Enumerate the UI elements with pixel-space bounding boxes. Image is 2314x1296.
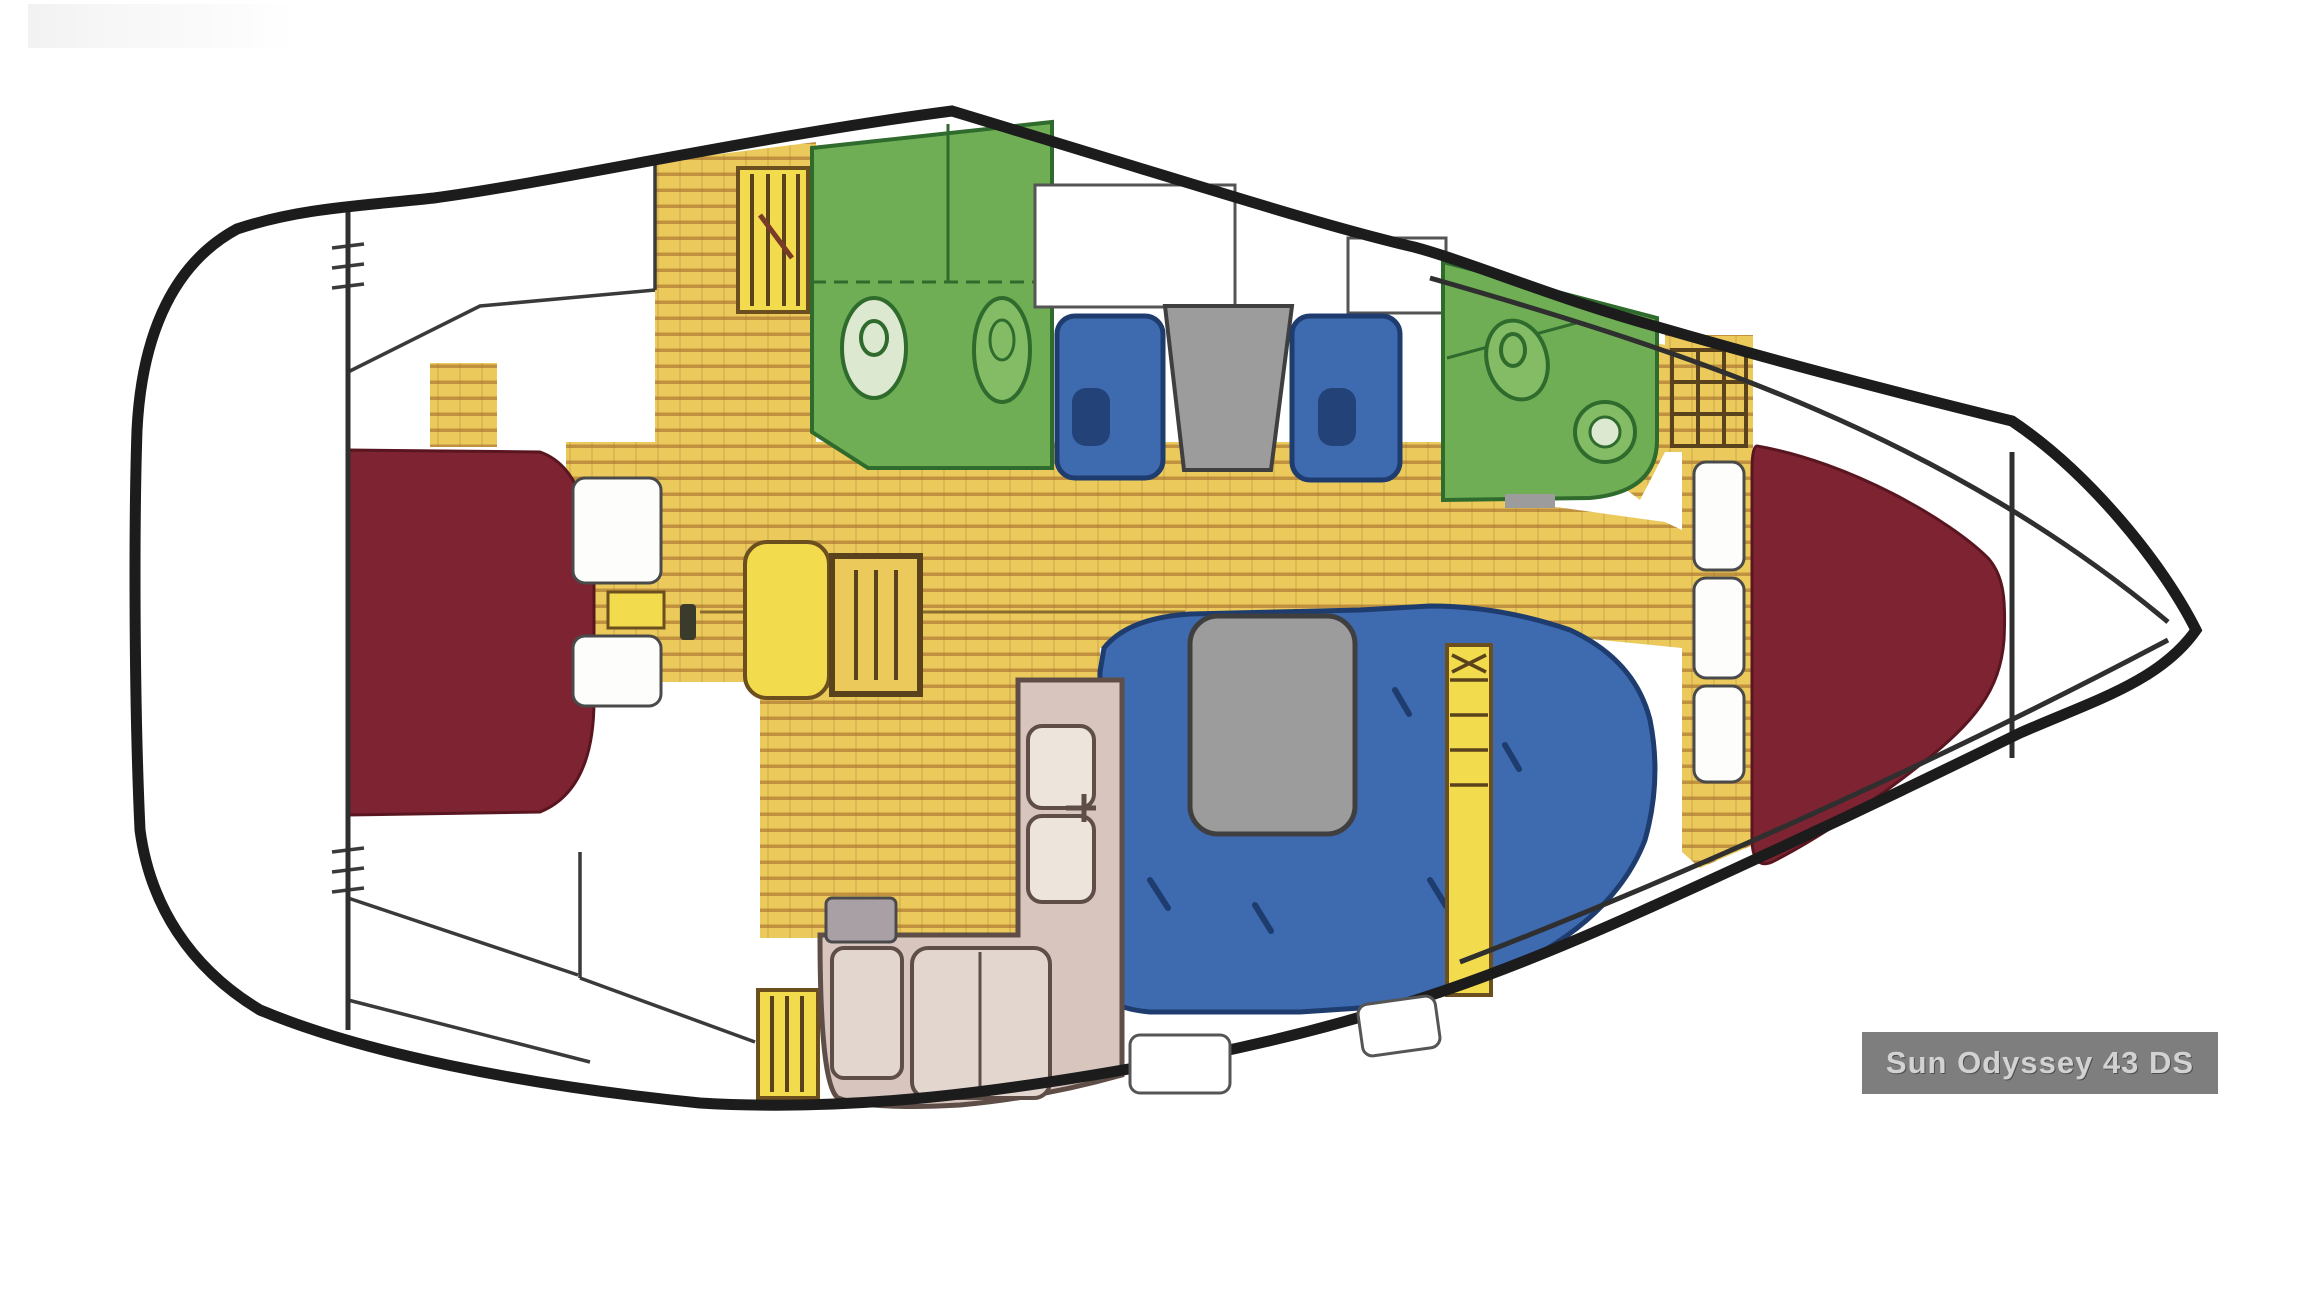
deck-step-1 [1130,1035,1230,1093]
model-name-badge: Sun Odyssey 43 DS [1862,1032,2218,1094]
bow-locker-3 [1694,686,1744,782]
aft-head-sink [974,298,1030,402]
aft-cabin-locker-2 [573,636,661,706]
saloon-settee [1100,606,1655,1012]
upper-table [1165,306,1292,470]
settee-cushions [1100,606,1655,1012]
aft-cabin-entry-floor [430,363,497,447]
boat-floorplan [0,0,2314,1296]
mast-post [680,604,696,640]
galley-oven [832,948,902,1078]
deck-step-2 [1357,995,1441,1057]
galley-sink-2 [1028,816,1094,902]
aft-head-toilet [842,298,906,398]
aft-head-room [812,122,1052,468]
upper-seat-left [1057,316,1163,478]
aft-cabin-step [608,592,664,628]
aft-cabin-locker-1 [573,478,661,583]
chart-table-seat [745,542,829,698]
aft-cabin-berth [348,450,594,815]
forward-head [1443,262,1657,508]
aft-head [812,122,1052,468]
upper-seat-right-cushion [1318,388,1356,446]
bow-locker-1 [1694,462,1744,570]
forward-cabin-ladder [1447,645,1491,995]
floorplan-page: Sun Odyssey 43 DS [0,0,2314,1296]
bow-locker-2 [1694,578,1744,678]
forward-head-sink-basin [1590,417,1620,447]
upper-seat-left-cushion [1072,388,1110,446]
forward-head-door-sill [1505,494,1555,508]
saloon-table [1190,616,1355,834]
galley-worktop-module [826,898,896,942]
side-deck-bench-1 [1035,185,1235,307]
